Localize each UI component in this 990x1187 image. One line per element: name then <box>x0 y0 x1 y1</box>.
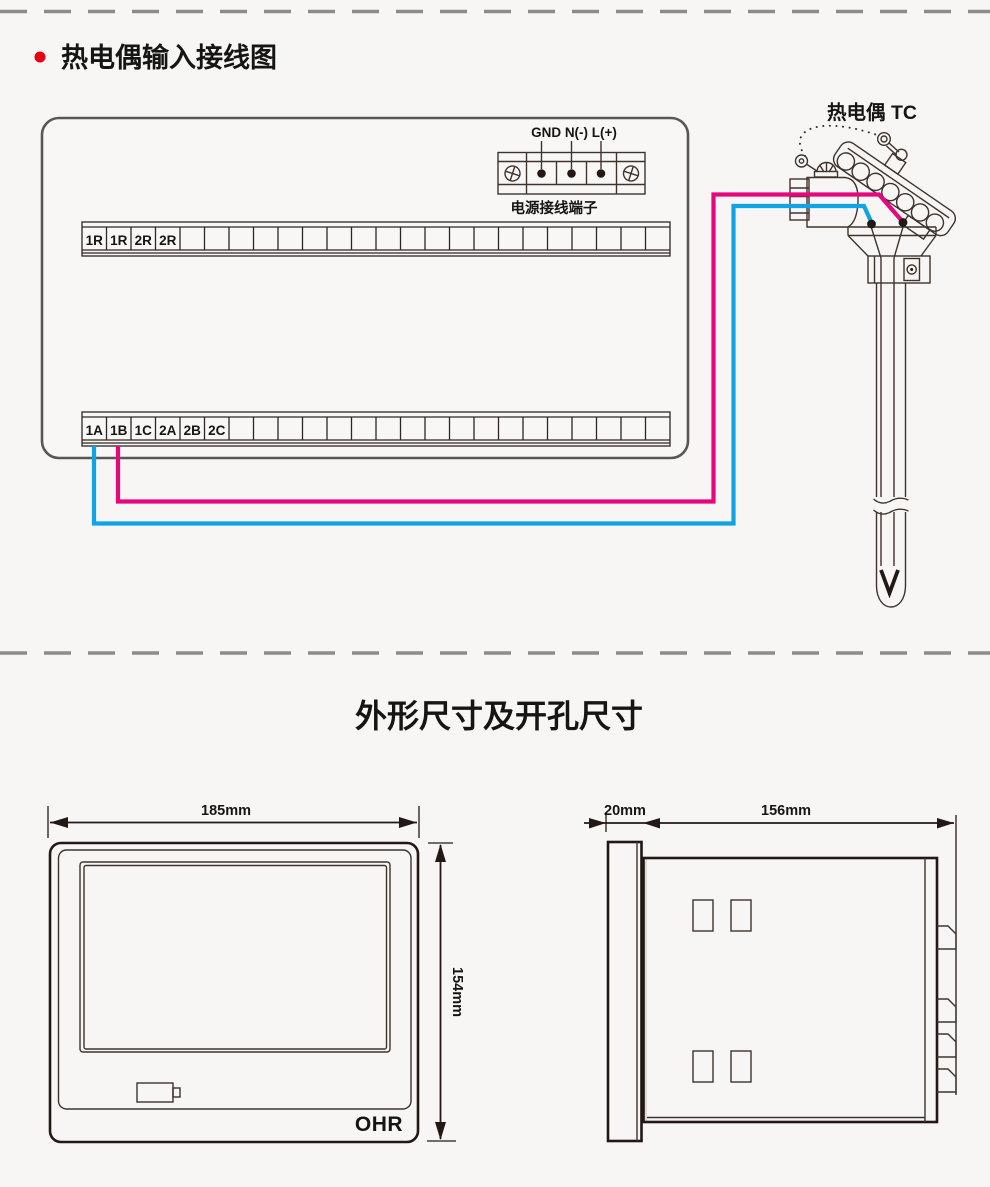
power-pins-label: GND N(-) L(+) <box>531 125 617 140</box>
page-canvas: 热电偶输入接线图 GND N(-) L(+) 电源接线端子 1R1R2R2R 1… <box>0 0 990 1187</box>
side-depth-dim: 20mm <box>604 803 646 819</box>
lower-strip-label: 1A <box>86 423 104 438</box>
side-view: 20mm 156mm <box>584 803 956 1141</box>
lower-strip-label: 2B <box>184 423 202 438</box>
lower-strip-label: 1B <box>110 423 128 438</box>
lower-strip-label: 2A <box>159 423 177 438</box>
front-view: 185mm OHR 154mm <box>48 803 465 1142</box>
power-terminal-caption: 电源接线端子 <box>511 199 598 217</box>
lower-strip-label: 1C <box>135 423 153 438</box>
mounting-tabs <box>937 926 956 1092</box>
front-width-dim: 185mm <box>201 803 251 819</box>
upper-strip-label: 2R <box>135 233 153 248</box>
upper-strip-label: 1R <box>110 233 128 248</box>
section2-title: 外形尺寸及开孔尺寸 <box>355 698 643 734</box>
wire-terminal-dot <box>867 220 876 229</box>
wire-terminal-dot <box>899 218 908 227</box>
terminal-dot-l <box>597 169 606 178</box>
device-outer-frame <box>50 843 418 1142</box>
terminal-dot-n <box>567 169 576 178</box>
lower-strip-label: 2C <box>208 423 226 438</box>
usb-slot <box>137 1083 180 1102</box>
thermocouple-figure <box>790 119 972 607</box>
brand-logo: OHR <box>355 1113 403 1136</box>
upper-strip-label: 2R <box>159 233 177 248</box>
thermocouple-label: 热电偶 TC <box>827 101 917 124</box>
probe-tip-arrow-icon <box>881 570 898 593</box>
front-height-dim: 154mm <box>449 967 465 1017</box>
vent-holes <box>693 900 751 1082</box>
section1-title: 热电偶输入接线图 <box>61 42 277 73</box>
instrument-rear-panel <box>42 118 688 458</box>
upper-strip-label: 1R <box>86 233 104 248</box>
thermocouple-head <box>807 178 858 228</box>
thermocouple-cap <box>824 119 972 248</box>
section-bullet-icon <box>35 52 46 63</box>
side-body <box>644 858 938 1122</box>
side-body-dim: 156mm <box>761 803 811 819</box>
device-screen <box>80 862 390 1052</box>
device-bezel <box>59 850 412 1109</box>
device-screen-inner <box>84 866 387 1050</box>
terminal-dot-gnd <box>537 169 546 178</box>
